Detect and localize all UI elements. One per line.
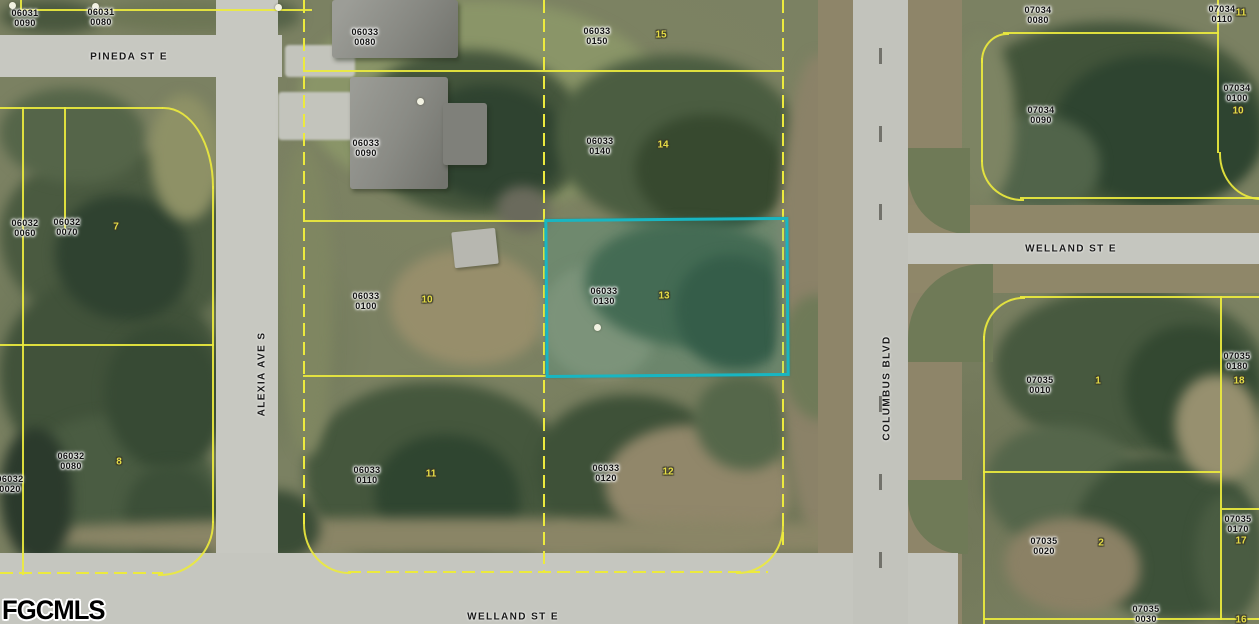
lot-number-marker: 11 [1236, 8, 1247, 19]
white-dot-marker [417, 98, 424, 105]
street-label-alexia-ave-s: ALEXIA AVE S [257, 332, 268, 417]
vegetation-patch [390, 250, 545, 365]
parcel-boundary-line [212, 186, 214, 523]
lot-number-marker: 13 [658, 291, 669, 302]
parcel-label-06032-0020: 06032 0020 [0, 474, 24, 494]
parcel-boundary-line [20, 9, 312, 11]
lot-number-marker: 11 [426, 469, 437, 480]
vegetation-patch [278, 145, 333, 455]
parcel-label-07035-0020: 07035 0020 [1030, 536, 1057, 556]
parcel-label-06033-0120: 06033 0120 [592, 463, 619, 483]
parcel-label-06033-0080: 06033 0080 [351, 27, 378, 47]
lot-number-marker: 10 [1232, 106, 1243, 117]
parcel-boundary-line [22, 107, 24, 575]
house-roof-wing [443, 103, 487, 165]
parcel-boundary-line [1220, 296, 1222, 620]
lot-number-marker: 10 [421, 295, 432, 306]
lot-number-marker: 14 [657, 140, 668, 151]
parcel-label-06033-0090: 06033 0090 [352, 138, 379, 158]
lot-number-marker: 12 [662, 467, 673, 478]
aerial-parcel-map: 06031 009006031 008006033 008006033 0090… [0, 0, 1259, 624]
parcel-label-06032-0070: 06032 0070 [53, 217, 80, 237]
house-roof [350, 77, 448, 189]
parcel-boundary-line [0, 572, 163, 574]
lot-number-marker: 2 [1098, 538, 1104, 549]
parcel-label-06033-0100: 06033 0100 [352, 291, 379, 311]
road-columbus-blvd [853, 0, 908, 624]
parcel-boundary-line [983, 471, 1222, 473]
parcel-label-07034-0100: 07034 0100 [1223, 83, 1250, 103]
parcel-label-06033-0130: 06033 0130 [590, 286, 617, 306]
road-centerline-dash [879, 204, 882, 220]
road-centerline-dash [879, 48, 882, 64]
parcel-label-07035-0180: 07035 0180 [1223, 351, 1250, 371]
lot-number-marker: 7 [113, 222, 119, 233]
road-centerline-dash [879, 126, 882, 142]
parcel-label-06033-0140: 06033 0140 [586, 136, 613, 156]
street-label-welland-st-e-south: WELLAND ST E [467, 612, 559, 623]
lot-number-marker: 18 [1233, 376, 1244, 387]
vegetation-patch [0, 428, 72, 563]
white-dot-marker [275, 4, 282, 11]
parcel-label-06033-0150: 06033 0150 [583, 26, 610, 46]
driveway [278, 92, 354, 140]
lot-number-marker: 8 [116, 457, 122, 468]
parcel-boundary-line [1020, 296, 1259, 298]
parcel-label-06032-0060: 06032 0060 [11, 218, 38, 238]
parcel-boundary-line [1222, 508, 1259, 510]
watermark: FGCMLS [2, 595, 105, 624]
parcel-boundary-line [303, 0, 305, 524]
parcel-label-07034-0110: 07034 0110 [1208, 4, 1235, 24]
parcel-boundary-line [303, 220, 546, 222]
parcel-boundary-line [0, 344, 214, 346]
parcel-label-07035-0010: 07035 0010 [1026, 375, 1053, 395]
road-alexia-ave-s [216, 0, 278, 562]
lot-number-marker: 15 [655, 30, 666, 41]
parcel-label-06033-0110: 06033 0110 [353, 465, 380, 485]
parcel-boundary-line [983, 336, 985, 624]
parcel-boundary-curve [1219, 152, 1259, 200]
parcel-boundary-line [348, 571, 768, 573]
parcel-boundary-line [1020, 197, 1259, 199]
parcel-label-06032-0080: 06032 0080 [57, 451, 84, 471]
parcel-label-07035-0170: 07035 0170 [1224, 514, 1251, 534]
road-centerline-dash [879, 474, 882, 490]
parcel-label-06031-0090: 06031 0090 [11, 8, 38, 28]
parcel-boundary-line [303, 375, 546, 377]
parcel-label-07034-0080: 07034 0080 [1024, 5, 1051, 25]
road-centerline-dash [879, 552, 882, 568]
lot-number-marker: 1 [1095, 376, 1101, 387]
vegetation-patch [497, 186, 549, 232]
parcel-boundary-line [981, 58, 983, 162]
street-label-welland-st-e-east: WELLAND ST E [1025, 244, 1117, 255]
parcel-label-06031-0080: 06031 0080 [87, 7, 114, 27]
parcel-boundary-line [983, 618, 1259, 620]
parcel-boundary-line [64, 107, 66, 232]
street-label-pineda-st-e: PINEDA ST E [90, 52, 168, 63]
street-label-columbus-blvd: COLUMBUS BLVD [882, 335, 893, 440]
parcel-label-07035-0030: 07035 0030 [1132, 604, 1159, 624]
lot-number-marker: 17 [1235, 536, 1246, 547]
parcel-boundary-line [0, 107, 163, 109]
white-dot-marker [594, 324, 601, 331]
shed [451, 228, 499, 268]
parcel-label-07034-0090: 07034 0090 [1027, 105, 1054, 125]
vegetation-patch [1005, 518, 1140, 613]
lot-number-marker: 16 [1235, 615, 1246, 624]
parcel-boundary-line [1003, 32, 1219, 34]
